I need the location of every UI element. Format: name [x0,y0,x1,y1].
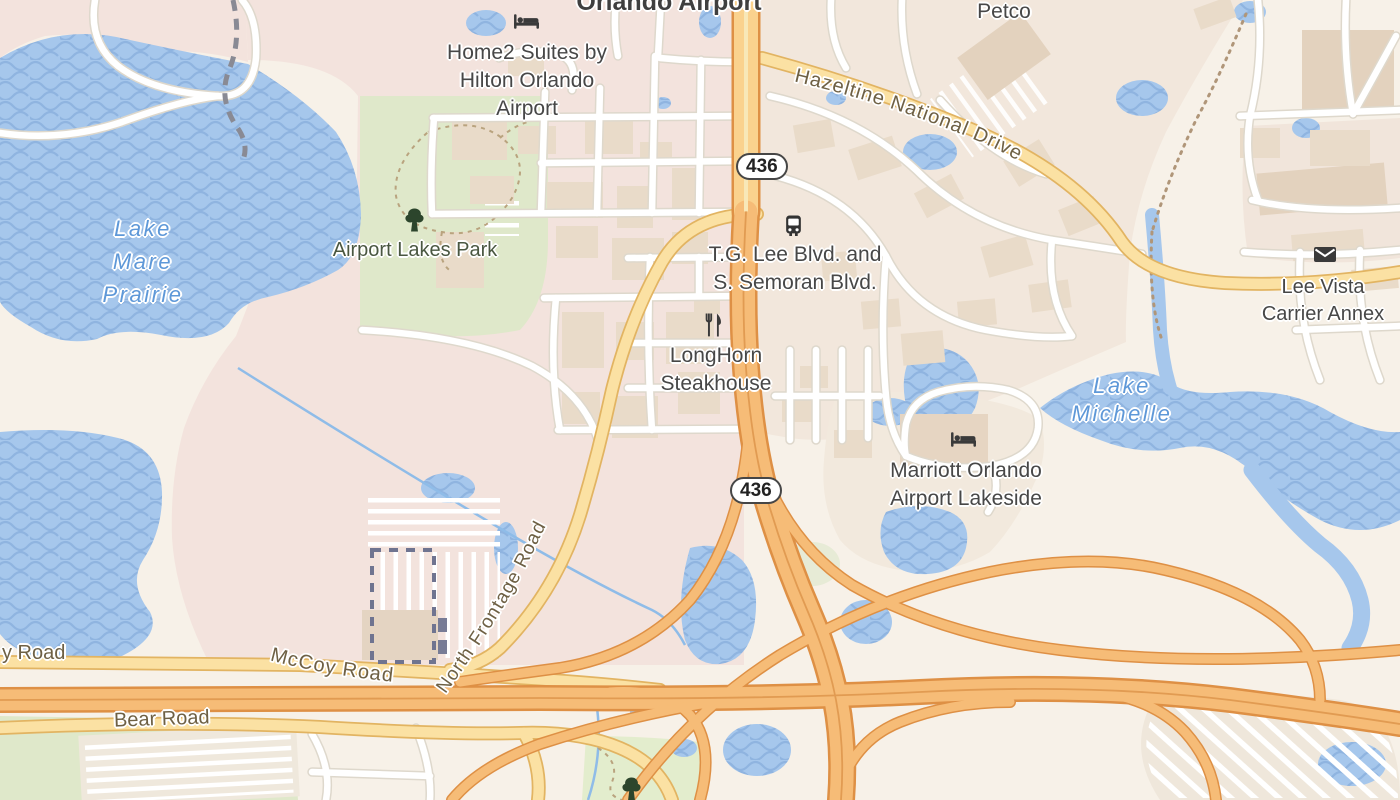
poi-label-line: Petco [977,0,1031,26]
city-label-text: Orlando Airport [576,0,761,17]
poi-label-lee-vista-carrier-annex[interactable]: Lee Vista Carrier Annex [1262,274,1384,328]
poi-label-tg-lee-bus-stop[interactable]: T.G. Lee Blvd. and S. Semoran Blvd. [709,241,882,297]
poi-label-line: Home2 Suites by [447,39,607,67]
route-shield-436: 436 [730,477,782,504]
poi-label-line: Hilton Orlando [447,67,607,95]
water-label-line: Michelle [1072,400,1173,428]
map-canvas[interactable]: Hazeltine National Drive McCoy Road Nort… [0,0,1400,800]
road-label-bear-road: Bear Road [114,706,210,732]
poi-label-home2-suites[interactable]: Home2 Suites by Hilton Orlando Airport [447,39,607,123]
poi-label-line: Lee Vista [1262,274,1384,301]
road-label-partial-y-road: y Road [2,642,65,665]
basemap-svg: Hazeltine National Drive McCoy Road Nort… [0,0,1400,800]
poi-label-line: Airport [447,95,607,123]
road-label-text: Bear Road [114,706,210,731]
city-label-orlando-airport[interactable]: Orlando Airport [576,0,761,17]
water-label-line: Lake [1072,372,1173,400]
water-label-lake-mare-prairie: Lake Mare Prairie [102,212,183,311]
poi-label-line: Airport Lakeside [890,485,1042,513]
park-label-text: Airport Lakes Park [333,238,498,262]
route-shield-text: 436 [740,480,772,502]
water-label-lake-michelle: Lake Michelle [1072,372,1173,428]
road-label-text: y Road [2,642,65,664]
poi-label-line: Steakhouse [661,370,772,398]
poi-label-line: T.G. Lee Blvd. and [709,241,882,269]
water-label-line: Lake [102,212,183,245]
route-shield-436: 436 [736,153,788,180]
poi-label-longhorn-steakhouse[interactable]: LongHorn Steakhouse [661,342,772,398]
poi-label-line: S. Semoran Blvd. [709,269,882,297]
poi-label-line: LongHorn [661,342,772,370]
poi-label-line: Carrier Annex [1262,301,1384,328]
park-label-airport-lakes-park: Airport Lakes Park [333,238,498,262]
water-label-line: Prairie [102,278,183,311]
poi-label-line: Marriott Orlando [890,457,1042,485]
water-label-line: Mare [102,245,183,278]
poi-label-marriott-lakeside[interactable]: Marriott Orlando Airport Lakeside [890,457,1042,513]
route-shield-text: 436 [746,156,778,178]
poi-label-petco[interactable]: Petco [977,0,1031,26]
